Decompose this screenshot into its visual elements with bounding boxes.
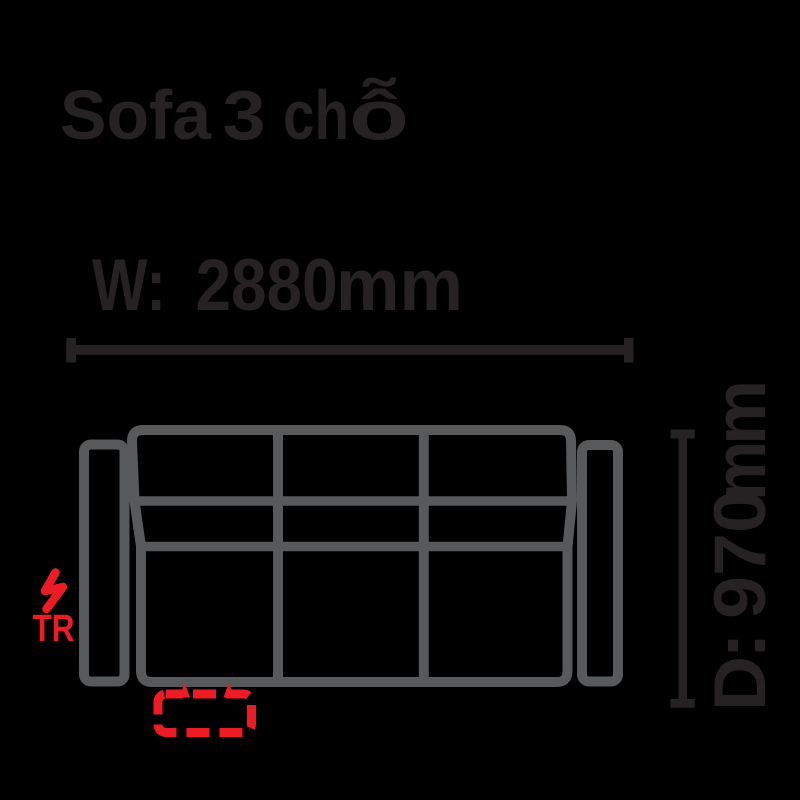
svg-text:Sofa3chỗ: Sofa3chỗ	[60, 76, 409, 154]
svg-text:TR: TR	[33, 608, 75, 650]
svg-text:W:2880mm: W:2880mm	[92, 245, 463, 326]
svg-text:D:970mm: D:970mm	[700, 380, 781, 711]
